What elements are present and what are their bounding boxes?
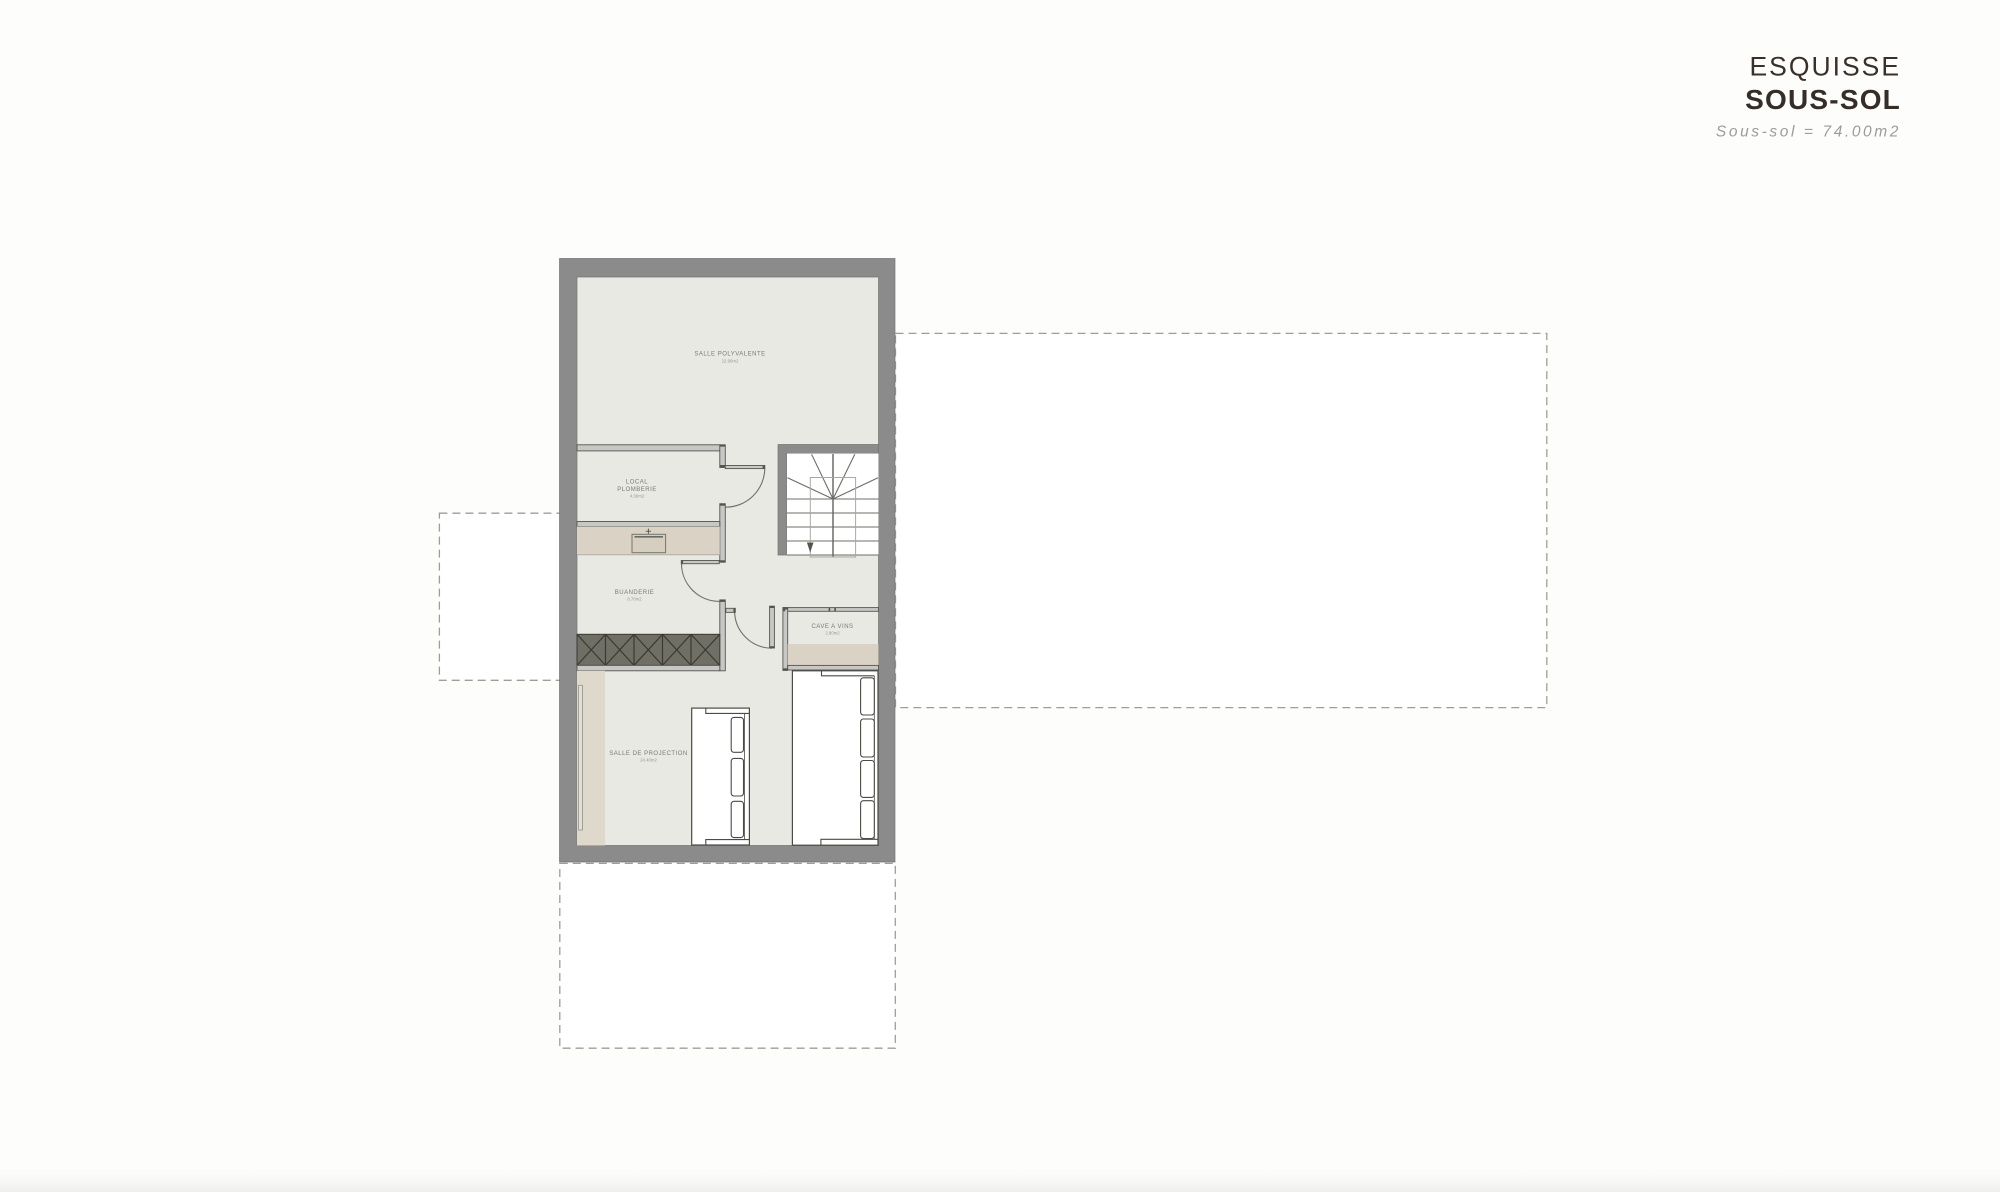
svg-text:4.30m2: 4.30m2: [630, 494, 645, 499]
svg-text:SOUS-SOL: SOUS-SOL: [1745, 84, 1901, 115]
svg-text:PLOMBERIE: PLOMBERIE: [617, 487, 657, 493]
svg-text:22.90m2: 22.90m2: [722, 359, 739, 364]
svg-text:8.70m2: 8.70m2: [627, 597, 642, 602]
svg-text:CAVE A VINS: CAVE A VINS: [811, 624, 853, 630]
svg-text:BUANDERIE: BUANDERIE: [615, 590, 655, 596]
svg-text:24.40m2: 24.40m2: [640, 758, 657, 763]
svg-text:Sous-sol = 74.00m2: Sous-sol = 74.00m2: [1716, 124, 1901, 141]
svg-text:SALLE DE PROJECTION: SALLE DE PROJECTION: [609, 751, 688, 757]
svg-text:ESQUISSE: ESQUISSE: [1750, 52, 1902, 82]
svg-text:LOCAL: LOCAL: [626, 480, 648, 486]
svg-text:2.80m2: 2.80m2: [825, 631, 840, 636]
svg-text:SALLE POLYVALENTE: SALLE POLYVALENTE: [694, 352, 765, 358]
